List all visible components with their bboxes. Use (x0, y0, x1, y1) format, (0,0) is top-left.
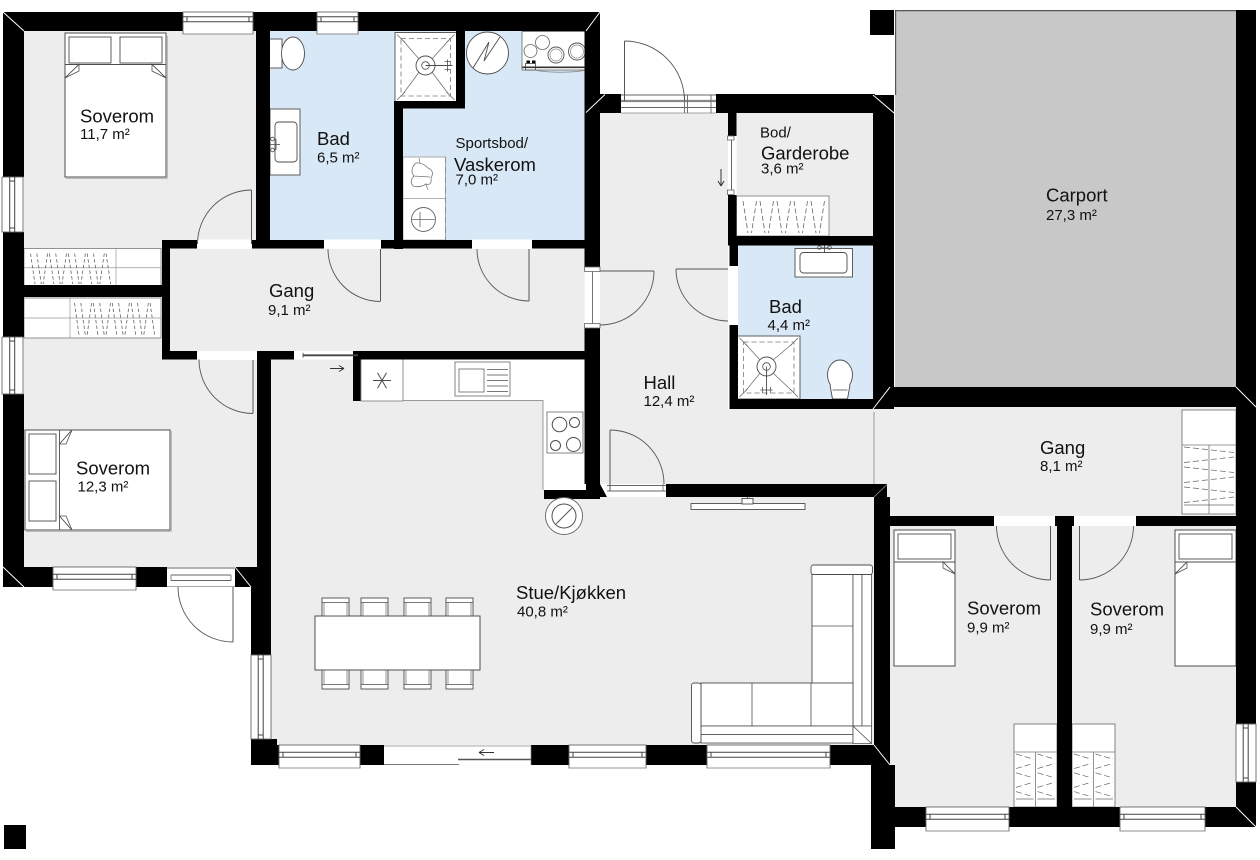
svg-text:40,8 m²: 40,8 m² (517, 604, 568, 621)
svg-text:4,4 m²: 4,4 m² (768, 317, 811, 334)
svg-text:Bod/: Bod/ (760, 125, 792, 142)
svg-text:Carport: Carport (1046, 185, 1108, 206)
svg-text:12,3 m²: 12,3 m² (78, 479, 129, 496)
svg-text:27,3 m²: 27,3 m² (1046, 207, 1097, 224)
svg-text:9,1 m²: 9,1 m² (268, 302, 311, 319)
svg-text:Soverom: Soverom (1090, 599, 1164, 620)
svg-text:9,9 m²: 9,9 m² (967, 620, 1010, 637)
svg-text:Hall: Hall (644, 372, 676, 393)
svg-text:6,5 m²: 6,5 m² (317, 150, 360, 167)
svg-text:Sportsbod/: Sportsbod/ (456, 135, 529, 152)
svg-text:Gang: Gang (269, 280, 314, 301)
svg-text:Soverom: Soverom (967, 598, 1041, 619)
svg-text:8,1 m²: 8,1 m² (1040, 458, 1083, 475)
svg-text:3,6 m²: 3,6 m² (761, 161, 804, 178)
svg-text:7,0 m²: 7,0 m² (456, 171, 499, 188)
svg-text:9,9 m²: 9,9 m² (1090, 621, 1133, 638)
svg-text:Gang: Gang (1040, 437, 1085, 458)
svg-text:12,4 m²: 12,4 m² (644, 393, 695, 410)
svg-text:Bad: Bad (769, 296, 802, 317)
svg-text:Bad: Bad (317, 128, 350, 149)
svg-text:Stue/Kjøkken: Stue/Kjøkken (516, 582, 626, 603)
svg-text:Soverom: Soverom (80, 105, 154, 126)
svg-text:Soverom: Soverom (76, 458, 150, 479)
svg-text:11,7 m²: 11,7 m² (80, 126, 130, 143)
